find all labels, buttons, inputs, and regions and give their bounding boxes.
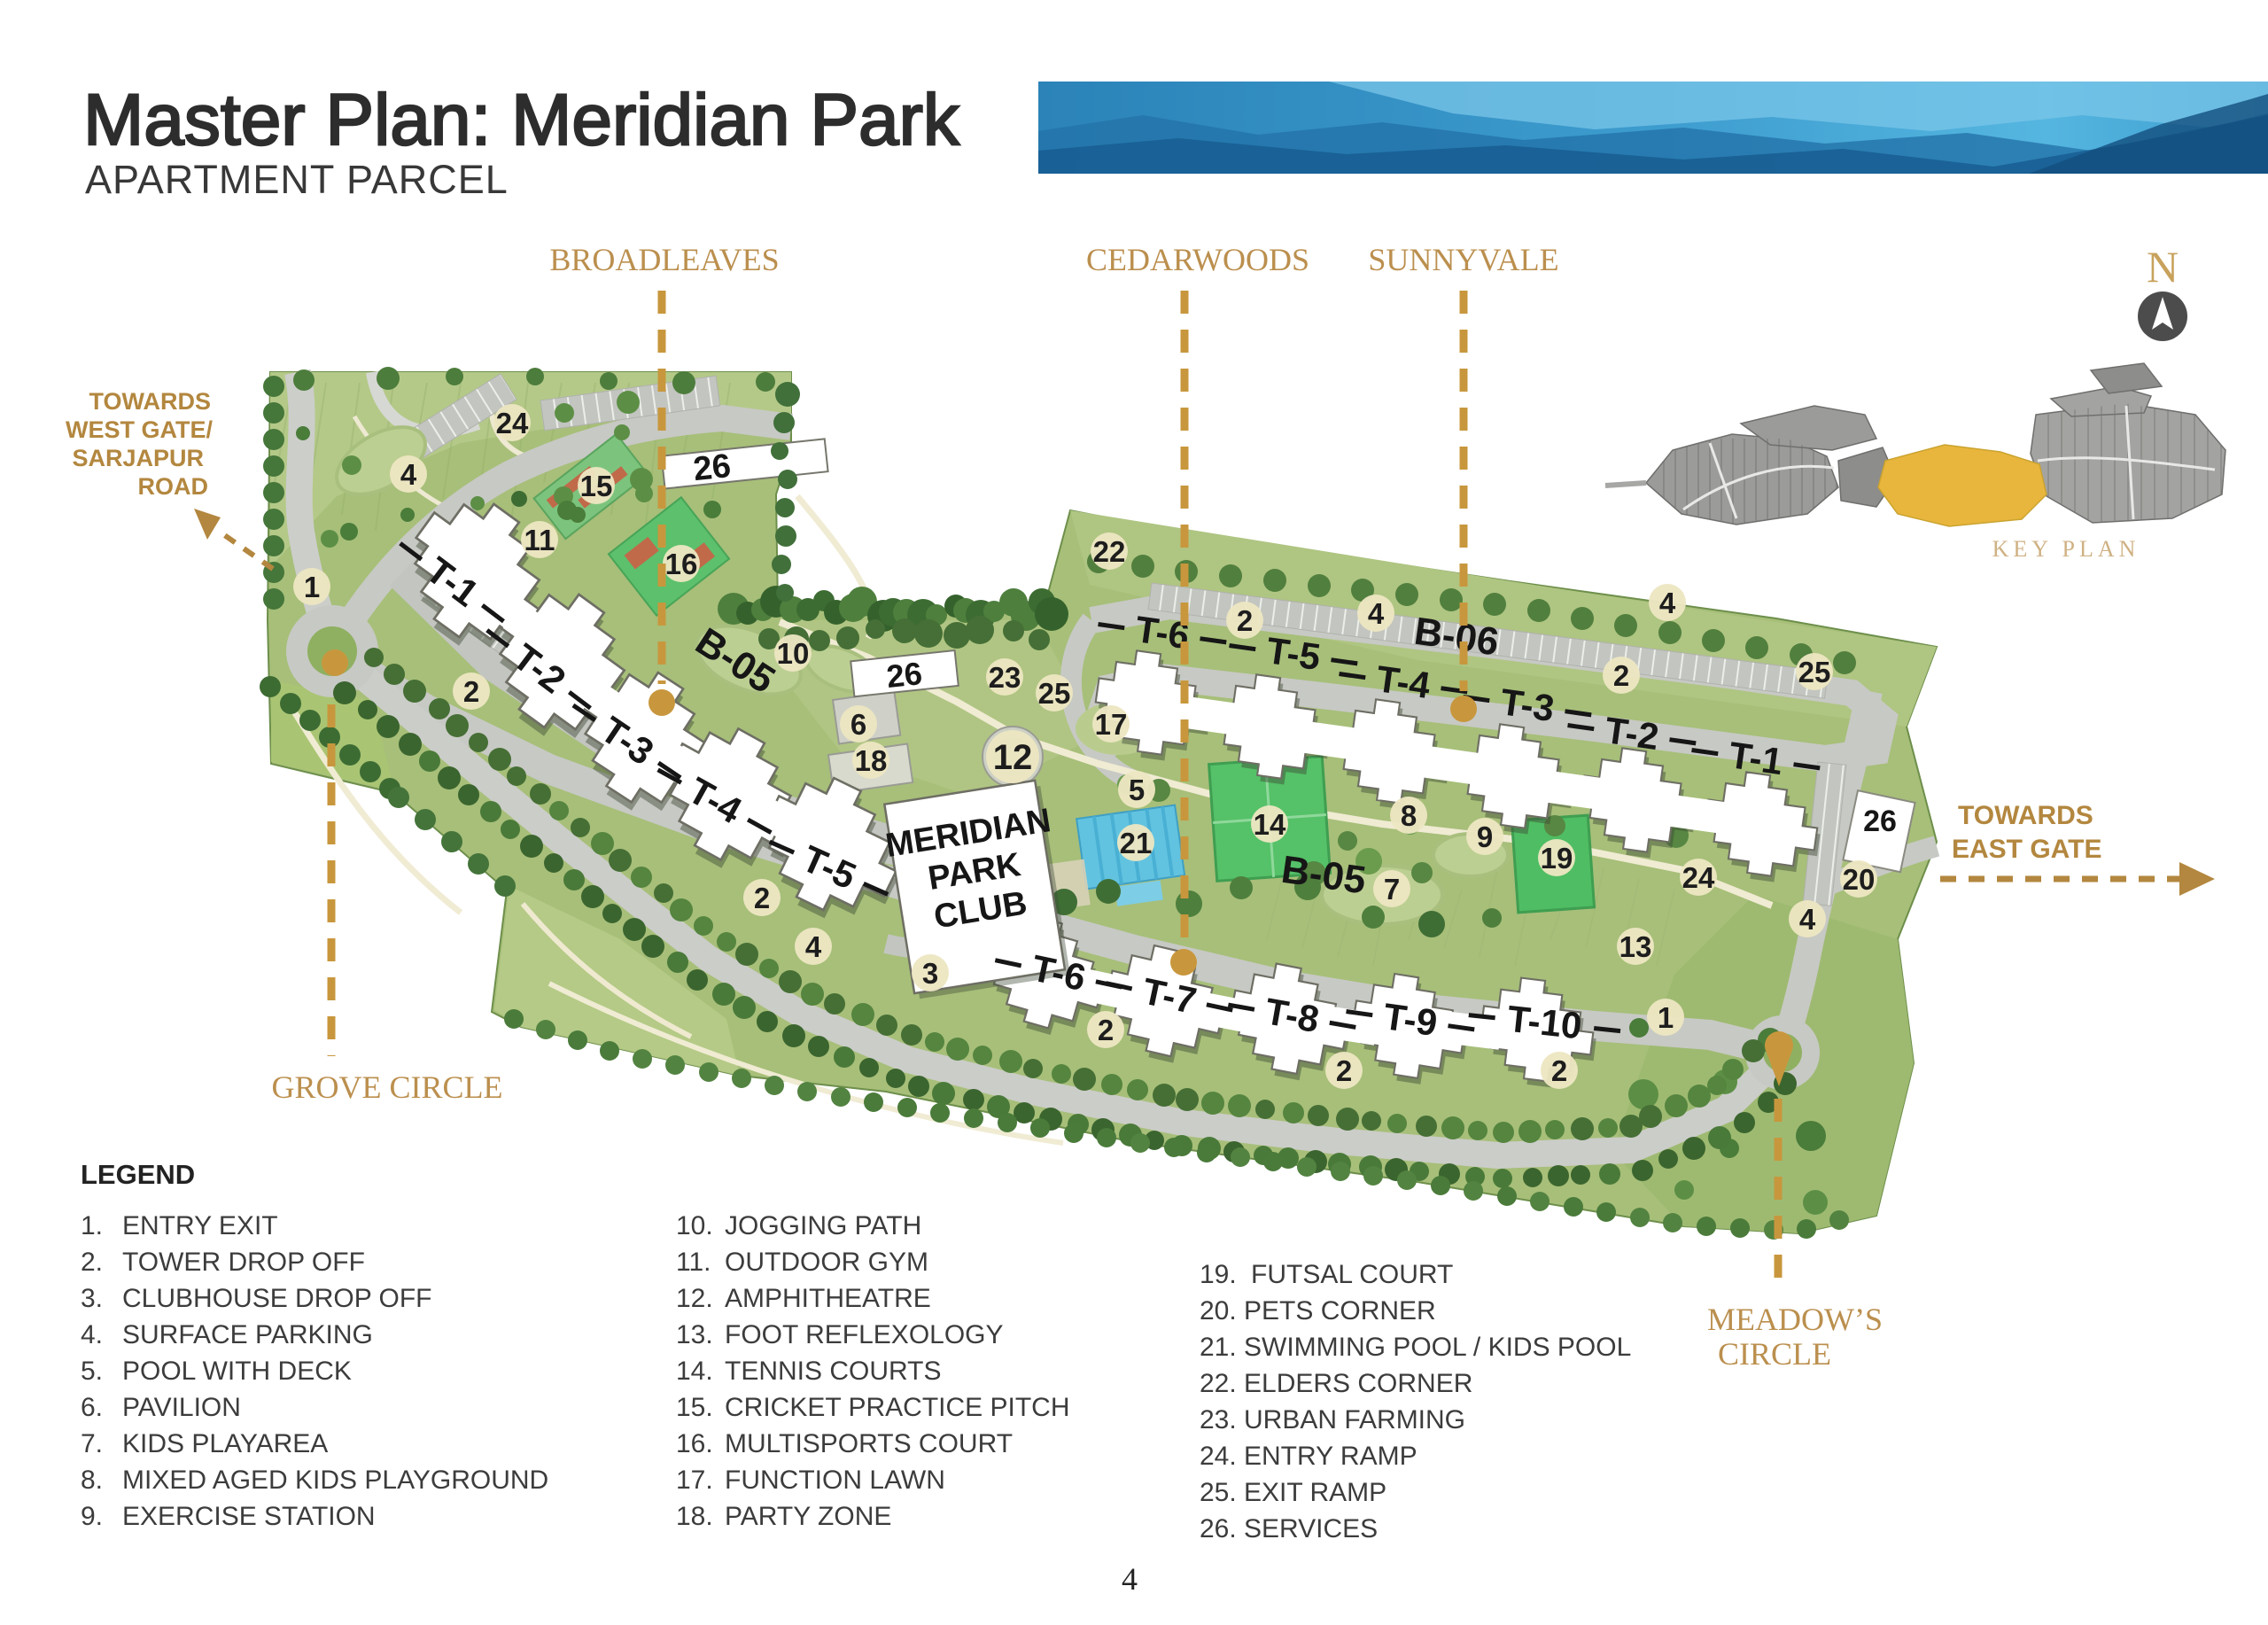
svg-text:2: 2 bbox=[1237, 604, 1253, 637]
svg-text:4: 4 bbox=[805, 930, 822, 963]
svg-text:10.: 10. bbox=[676, 1211, 713, 1240]
svg-text:EAST GATE: EAST GATE bbox=[1952, 835, 2101, 864]
svg-text:CEDARWOODS: CEDARWOODS bbox=[1086, 242, 1309, 277]
svg-text:16: 16 bbox=[665, 548, 698, 580]
svg-text:18.: 18. bbox=[676, 1502, 713, 1531]
svg-text:12.: 12. bbox=[676, 1284, 713, 1313]
svg-text:13: 13 bbox=[1619, 930, 1652, 963]
svg-text:14.: 14. bbox=[676, 1357, 713, 1386]
svg-text:2: 2 bbox=[1098, 1014, 1114, 1046]
svg-text:OUTDOOR GYM: OUTDOOR GYM bbox=[725, 1248, 928, 1277]
svg-text:LEGEND: LEGEND bbox=[81, 1159, 195, 1190]
svg-text:2: 2 bbox=[1336, 1054, 1352, 1087]
svg-text:15: 15 bbox=[580, 470, 613, 502]
svg-text:2: 2 bbox=[1613, 659, 1629, 692]
svg-text:24.: 24. bbox=[1200, 1442, 1237, 1471]
svg-text:13.: 13. bbox=[676, 1320, 713, 1349]
svg-text:5: 5 bbox=[1129, 774, 1145, 806]
svg-text:2.: 2. bbox=[81, 1248, 103, 1277]
svg-text:2: 2 bbox=[463, 675, 479, 708]
svg-text:26: 26 bbox=[1863, 805, 1897, 838]
svg-text:3.: 3. bbox=[81, 1284, 103, 1313]
svg-text:CIRCLE: CIRCLE bbox=[1718, 1336, 1831, 1372]
svg-text:TENNIS COURTS: TENNIS COURTS bbox=[725, 1357, 941, 1386]
svg-text:AMPHITHEATRE: AMPHITHEATRE bbox=[725, 1284, 931, 1313]
svg-text:1: 1 bbox=[304, 571, 320, 603]
svg-text:4: 4 bbox=[1368, 597, 1385, 630]
svg-text:17: 17 bbox=[1095, 708, 1128, 741]
svg-text:21.: 21. bbox=[1200, 1333, 1237, 1362]
svg-text:11.: 11. bbox=[676, 1248, 711, 1277]
svg-text:20: 20 bbox=[1843, 863, 1876, 896]
svg-text:PETS CORNER: PETS CORNER bbox=[1244, 1296, 1436, 1326]
svg-text:23: 23 bbox=[989, 661, 1021, 694]
svg-text:11: 11 bbox=[524, 524, 555, 556]
svg-text:Master Plan: Meridian Park: Master Plan: Meridian Park bbox=[83, 80, 960, 160]
svg-text:17.: 17. bbox=[676, 1466, 713, 1495]
svg-text:ELDERS CORNER: ELDERS CORNER bbox=[1244, 1369, 1472, 1398]
svg-text:10: 10 bbox=[777, 637, 810, 670]
svg-text:T-1: T-1 bbox=[1727, 734, 1786, 782]
svg-text:4.: 4. bbox=[81, 1320, 103, 1349]
svg-text:4: 4 bbox=[400, 458, 417, 491]
svg-text:15.: 15. bbox=[676, 1393, 713, 1422]
svg-text:22.: 22. bbox=[1200, 1369, 1237, 1398]
svg-text:16.: 16. bbox=[676, 1429, 713, 1458]
svg-text:T-9: T-9 bbox=[1381, 995, 1441, 1044]
svg-text:ENTRY RAMP: ENTRY RAMP bbox=[1244, 1442, 1417, 1471]
svg-text:9.: 9. bbox=[81, 1502, 103, 1531]
svg-text:MEADOW’S: MEADOW’S bbox=[1707, 1302, 1883, 1337]
svg-text:BROADLEAVES: BROADLEAVES bbox=[549, 242, 779, 277]
svg-text:PAVILION: PAVILION bbox=[122, 1393, 241, 1422]
svg-text:8: 8 bbox=[1401, 799, 1417, 832]
svg-text:SERVICES: SERVICES bbox=[1244, 1514, 1378, 1543]
svg-text:22: 22 bbox=[1093, 535, 1126, 568]
svg-text:19: 19 bbox=[1541, 842, 1573, 875]
svg-text:6.: 6. bbox=[81, 1393, 103, 1422]
svg-text:26: 26 bbox=[692, 447, 733, 488]
svg-text:TOWER DROP OFF: TOWER DROP OFF bbox=[122, 1248, 365, 1277]
svg-text:TOWARDS: TOWARDS bbox=[1958, 801, 2093, 830]
svg-text:26.: 26. bbox=[1200, 1514, 1237, 1543]
svg-text:T-4: T-4 bbox=[1374, 657, 1433, 706]
svg-text:SURFACE PARKING: SURFACE PARKING bbox=[122, 1320, 373, 1349]
svg-text:KIDS PLAYAREA: KIDS PLAYAREA bbox=[122, 1429, 328, 1458]
svg-text:25.: 25. bbox=[1200, 1478, 1237, 1507]
svg-text:MIXED AGED KIDS PLAYGROUND: MIXED AGED KIDS PLAYGROUND bbox=[122, 1466, 548, 1495]
svg-text:2: 2 bbox=[1551, 1054, 1567, 1087]
svg-text:24: 24 bbox=[496, 407, 529, 439]
svg-text:T-2: T-2 bbox=[1603, 709, 1662, 758]
svg-text:4: 4 bbox=[1799, 903, 1816, 936]
svg-text:CRICKET PRACTICE PITCH: CRICKET PRACTICE PITCH bbox=[725, 1393, 1070, 1422]
svg-text:EXIT RAMP: EXIT RAMP bbox=[1244, 1478, 1386, 1507]
svg-text:CLUBHOUSE DROP OFF: CLUBHOUSE DROP OFF bbox=[122, 1284, 432, 1313]
svg-text:4: 4 bbox=[1659, 587, 1676, 619]
svg-text:MULTISPORTS COURT: MULTISPORTS COURT bbox=[725, 1429, 1013, 1458]
svg-text:KEY PLAN: KEY PLAN bbox=[1992, 536, 2140, 562]
svg-text:3: 3 bbox=[922, 957, 938, 990]
svg-text:FUTSAL COURT: FUTSAL COURT bbox=[1251, 1260, 1453, 1289]
svg-text:T-5: T-5 bbox=[1264, 629, 1324, 678]
svg-text:T-3: T-3 bbox=[1498, 680, 1557, 729]
svg-text:6: 6 bbox=[850, 708, 866, 741]
svg-text:TOWARDS: TOWARDS bbox=[89, 388, 211, 415]
svg-text:23.: 23. bbox=[1200, 1405, 1237, 1435]
svg-text:26: 26 bbox=[885, 655, 924, 695]
svg-text:1: 1 bbox=[1658, 1001, 1674, 1034]
svg-text:URBAN FARMING: URBAN FARMING bbox=[1244, 1405, 1465, 1435]
svg-text:ROAD: ROAD bbox=[138, 473, 209, 500]
svg-text:T-10: T-10 bbox=[1505, 998, 1583, 1047]
svg-text:FUNCTION LAWN: FUNCTION LAWN bbox=[725, 1466, 945, 1495]
svg-text:GROVE CIRCLE: GROVE CIRCLE bbox=[272, 1069, 503, 1105]
svg-text:7.: 7. bbox=[81, 1429, 103, 1458]
svg-text:JOGGING PATH: JOGGING PATH bbox=[725, 1211, 921, 1240]
svg-text:4: 4 bbox=[1122, 1561, 1138, 1597]
svg-text:APARTMENT PARCEL: APARTMENT PARCEL bbox=[85, 157, 509, 202]
svg-text:WEST GATE/: WEST GATE/ bbox=[66, 416, 213, 443]
svg-text:1.: 1. bbox=[81, 1211, 103, 1240]
svg-text:2: 2 bbox=[754, 882, 770, 914]
svg-text:EXERCISE STATION: EXERCISE STATION bbox=[122, 1502, 376, 1531]
svg-text:SARJAPUR: SARJAPUR bbox=[72, 445, 204, 471]
svg-text:25: 25 bbox=[1798, 656, 1831, 688]
svg-text:19.: 19. bbox=[1200, 1260, 1237, 1289]
svg-text:12: 12 bbox=[993, 738, 1033, 777]
svg-text:7: 7 bbox=[1384, 873, 1400, 906]
svg-text:FOOT REFLEXOLOGY: FOOT REFLEXOLOGY bbox=[725, 1320, 1004, 1349]
svg-text:21: 21 bbox=[1120, 827, 1153, 859]
svg-text:25: 25 bbox=[1038, 677, 1071, 710]
svg-text:PARTY ZONE: PARTY ZONE bbox=[725, 1502, 891, 1531]
svg-text:ENTRY EXIT: ENTRY EXIT bbox=[122, 1211, 278, 1240]
svg-text:8.: 8. bbox=[81, 1466, 103, 1495]
svg-text:24: 24 bbox=[1682, 861, 1715, 894]
svg-text:14: 14 bbox=[1254, 808, 1286, 841]
svg-text:20.: 20. bbox=[1200, 1296, 1237, 1326]
svg-text:18: 18 bbox=[855, 744, 888, 777]
svg-text:N: N bbox=[2147, 242, 2179, 292]
svg-text:SUNNYVALE: SUNNYVALE bbox=[1368, 242, 1558, 277]
svg-text:SWIMMING POOL / KIDS POOL: SWIMMING POOL / KIDS POOL bbox=[1244, 1333, 1631, 1362]
svg-text:9: 9 bbox=[1477, 820, 1493, 853]
svg-text:POOL WITH DECK: POOL WITH DECK bbox=[122, 1357, 352, 1386]
svg-text:5.: 5. bbox=[81, 1357, 103, 1386]
